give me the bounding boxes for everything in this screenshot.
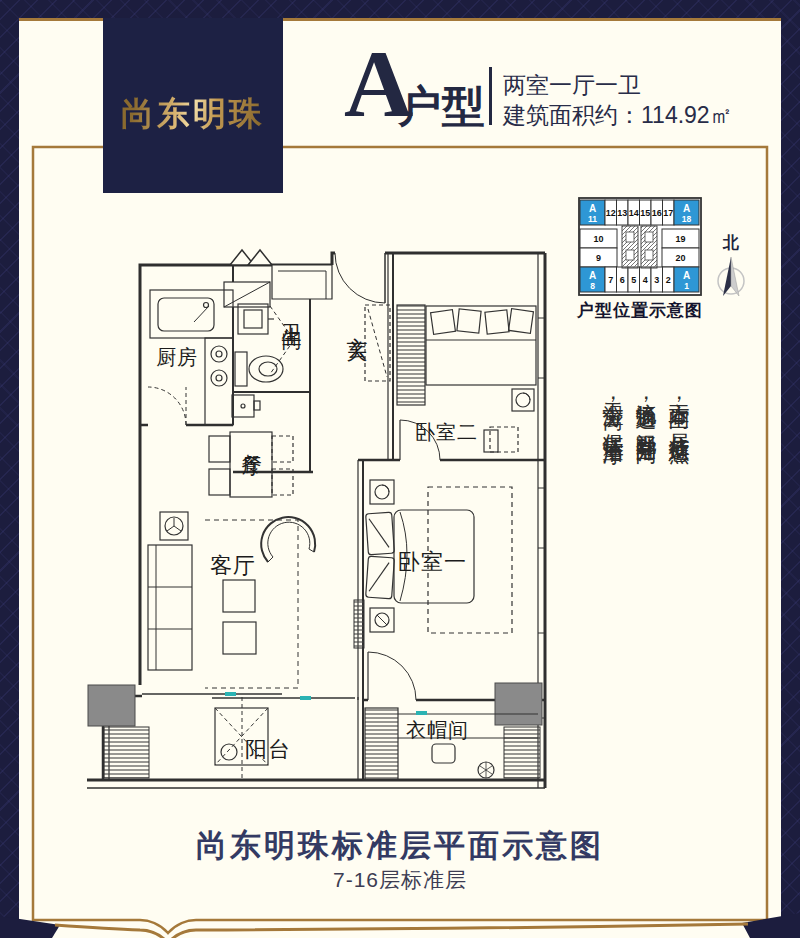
sofa bbox=[148, 545, 192, 670]
room-label-balcony: 阳台 bbox=[245, 735, 291, 765]
room-label-kitchen: 厨房 bbox=[156, 344, 198, 371]
washbasin-icon bbox=[232, 395, 260, 417]
room-label-bedroom1: 卧室一 bbox=[398, 547, 467, 577]
unit-cell-label: 7 bbox=[608, 275, 613, 285]
pillar-right bbox=[495, 683, 542, 725]
unit-cell-label: 15 bbox=[640, 208, 650, 218]
unit-cell-label: 17 bbox=[663, 208, 673, 218]
nightstand-bedroom2 bbox=[490, 427, 518, 452]
cabinet-bedroom2 bbox=[484, 430, 498, 452]
unit-cell-label: 6 bbox=[620, 275, 625, 285]
slogan-line-2: 流畅通透，视野空间开阔 bbox=[629, 386, 662, 671]
unit-cell-label: 1 bbox=[684, 281, 689, 291]
north-indicator: 北 bbox=[714, 233, 748, 308]
kitchen-sink-icon bbox=[150, 290, 233, 338]
unit-cell-label: A bbox=[589, 203, 596, 214]
bed-bedroom2 bbox=[426, 306, 536, 385]
unit-location-diagram: A11121314151617A181091920A8765432A1 bbox=[577, 196, 705, 298]
railing-right bbox=[504, 727, 540, 778]
project-badge: 尚东明珠 bbox=[103, 18, 283, 193]
header-divider bbox=[489, 67, 492, 125]
ac-unit-living-icon bbox=[160, 512, 188, 540]
slogan-block: 方正空间，居住舒适悠然 流畅通透，视野空间开阔 干湿分离，保证居室洁净 bbox=[596, 386, 695, 671]
room-label-living: 客厅 bbox=[210, 551, 256, 581]
unit-cell-label: 18 bbox=[682, 214, 692, 224]
fan-unit-bedroom1-icon bbox=[370, 608, 394, 632]
unit-cell-label: 5 bbox=[631, 275, 636, 285]
stove-icon bbox=[205, 338, 233, 425]
unit-cell-label: 14 bbox=[629, 208, 639, 218]
compass-icon bbox=[714, 254, 748, 304]
bathroom-sink-icon bbox=[238, 304, 274, 334]
slogan-line-1: 方正空间，居住舒适悠然 bbox=[662, 386, 695, 671]
unit-cell-label: 2 bbox=[666, 275, 671, 285]
railing-left bbox=[104, 727, 149, 778]
floor-plan: 厨房 卫生间 玄关 卧室二 餐厅 客厅 卧室一 阳台 衣帽间 bbox=[82, 248, 562, 803]
coffee-table-1 bbox=[223, 580, 255, 612]
unit-cell-label: 12 bbox=[606, 208, 616, 218]
unit-cell-label: 11 bbox=[588, 214, 597, 224]
unit-cell-label: 10 bbox=[593, 234, 603, 244]
footer-title: 尚东明珠标准层平面示意图 bbox=[0, 825, 800, 867]
project-name: 尚东明珠 bbox=[121, 92, 265, 137]
coffee-table-2 bbox=[223, 622, 256, 654]
north-label: 北 bbox=[714, 233, 748, 254]
footer-subtitle: 7-16层标准层 bbox=[0, 866, 800, 894]
unit-cell-label: 4 bbox=[643, 275, 648, 285]
shoe-cabinet bbox=[365, 305, 390, 381]
room-label-bedroom2: 卧室二 bbox=[415, 419, 478, 446]
room-label-dining: 餐厅 bbox=[239, 438, 266, 444]
unit-type-label: 户型 bbox=[398, 78, 486, 136]
stool bbox=[432, 744, 455, 763]
toilet-icon bbox=[235, 352, 283, 386]
unit-specs: 两室一厅一卫 建筑面积约：114.92㎡ bbox=[503, 71, 733, 129]
wardrobe-cloakroom bbox=[365, 708, 398, 780]
area-spec: 建筑面积约：114.92㎡ bbox=[503, 101, 733, 129]
unit-cell-label: 9 bbox=[596, 253, 601, 263]
unit-cell-label: 20 bbox=[675, 253, 685, 263]
poster-page: 尚东明珠 A 户型 两室一厅一卫 建筑面积约：114.92㎡ A11121314… bbox=[0, 0, 800, 938]
pillar-left bbox=[88, 685, 135, 726]
wardrobe-bedroom2 bbox=[397, 305, 425, 405]
room-label-cloakroom: 衣帽间 bbox=[406, 717, 469, 744]
drain-icon bbox=[478, 762, 494, 778]
unit-cell-label: A bbox=[589, 270, 596, 281]
unit-cell-label: 19 bbox=[675, 234, 685, 244]
unit-cell-label: 13 bbox=[617, 208, 627, 218]
floor-plan-drawing bbox=[82, 248, 562, 803]
room-label-hallway: 玄关 bbox=[343, 320, 371, 326]
ac-unit-bedroom2-icon bbox=[512, 389, 534, 411]
location-diagram-caption: 户型位置示意图 bbox=[572, 299, 708, 322]
unit-cell-label: 3 bbox=[654, 275, 659, 285]
unit-cell-label: 8 bbox=[590, 281, 595, 291]
slogan-line-3: 干湿分离，保证居室洁净 bbox=[596, 386, 629, 671]
room-label-bathroom: 卫生间 bbox=[279, 308, 306, 317]
unit-cell-label: A bbox=[683, 270, 690, 281]
unit-cell-label: A bbox=[683, 203, 690, 214]
ac-unit-bedroom1-icon bbox=[370, 480, 394, 504]
unit-cell-label: 16 bbox=[652, 208, 662, 218]
armchair bbox=[261, 517, 315, 562]
layout-spec: 两室一厅一卫 bbox=[503, 71, 733, 99]
living-area-outline bbox=[205, 520, 298, 688]
